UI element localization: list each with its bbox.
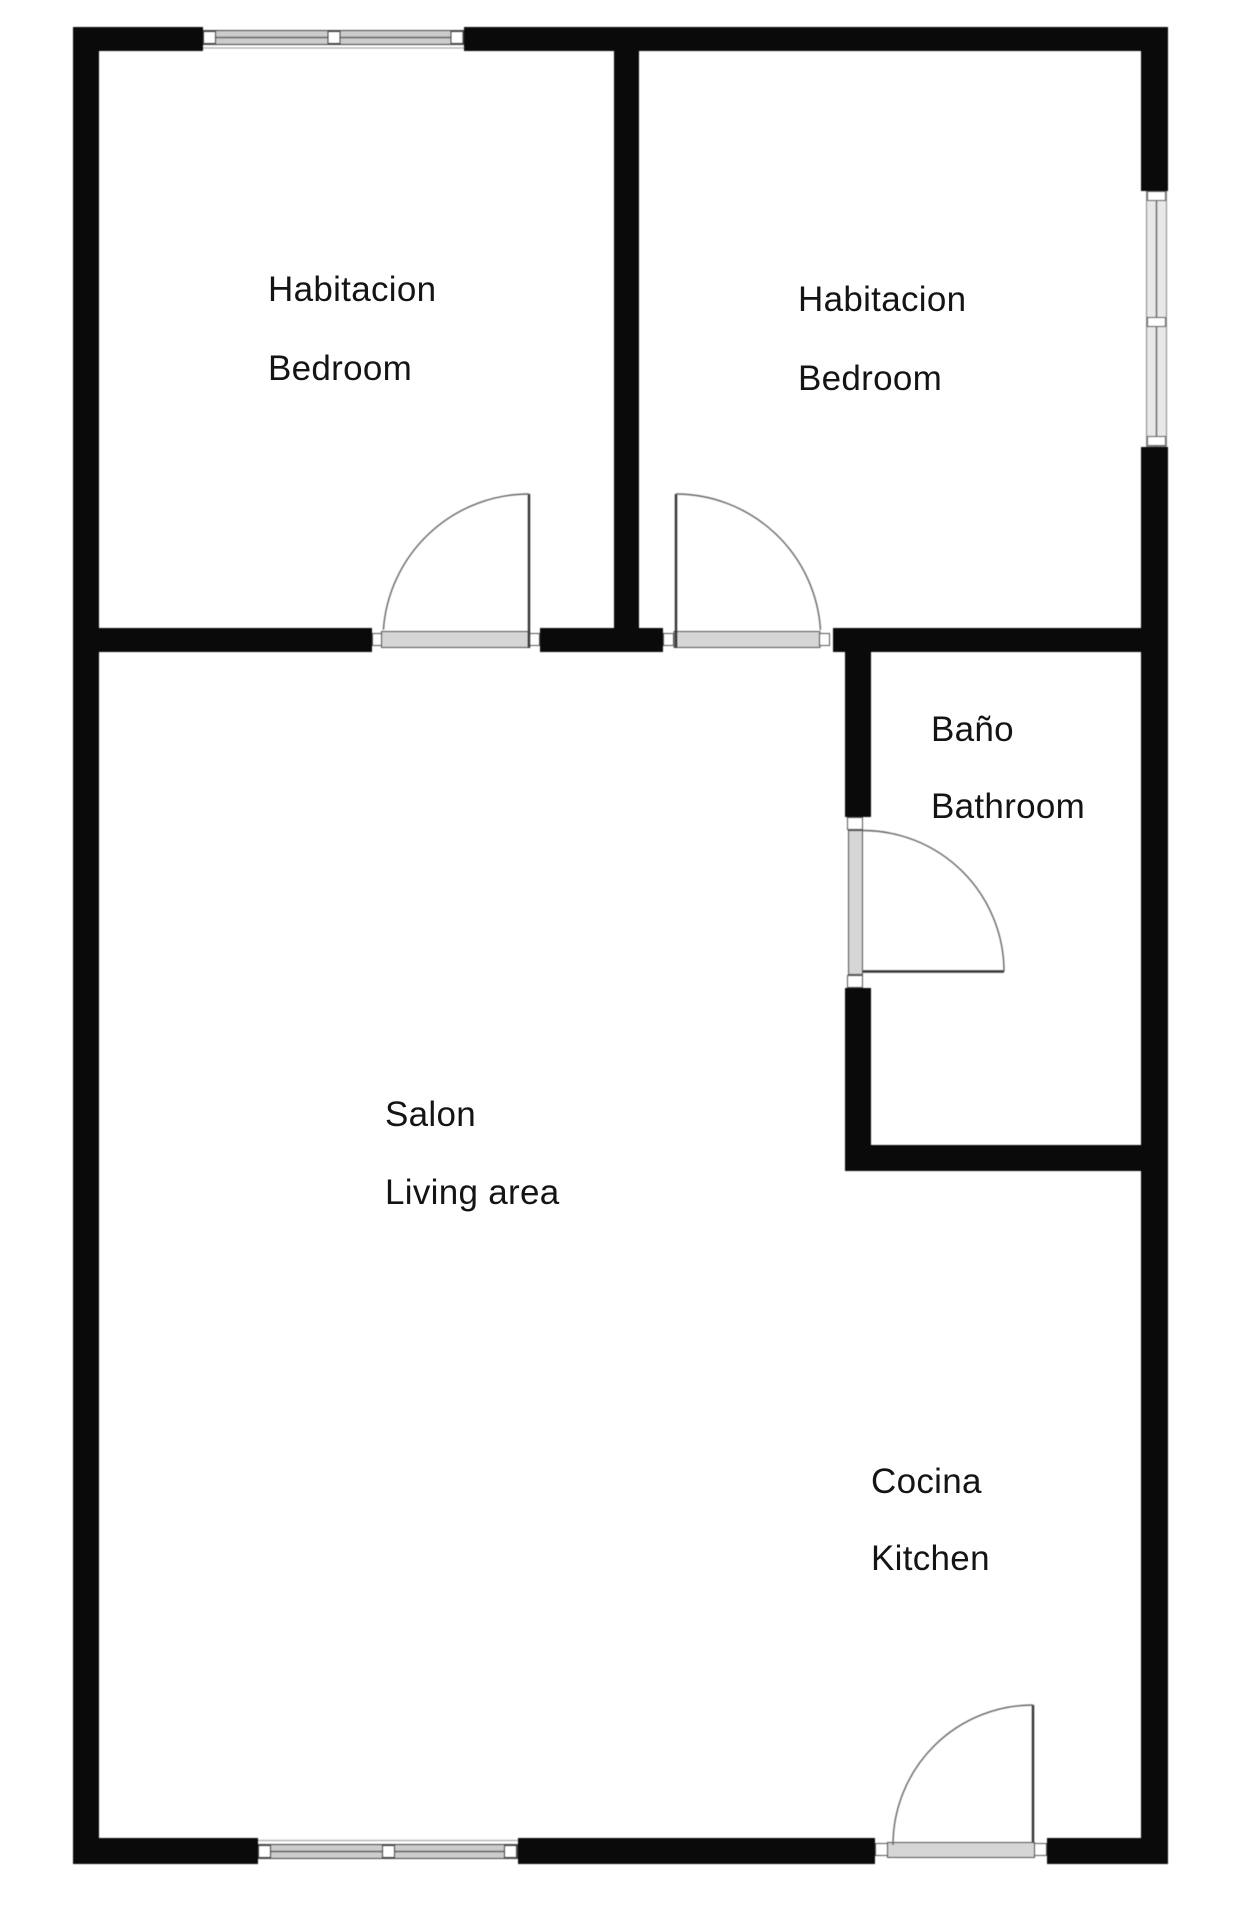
svg-text:Living area: Living area bbox=[385, 1173, 560, 1212]
svg-text:Cocina: Cocina bbox=[871, 1462, 982, 1501]
svg-text:Habitacion: Habitacion bbox=[798, 280, 966, 319]
svg-text:Bedroom: Bedroom bbox=[798, 359, 942, 398]
svg-text:Habitacion: Habitacion bbox=[268, 270, 436, 309]
svg-text:Salon: Salon bbox=[385, 1095, 476, 1134]
svg-text:Kitchen: Kitchen bbox=[871, 1539, 990, 1578]
svg-text:Baño: Baño bbox=[931, 710, 1014, 749]
svg-text:Bedroom: Bedroom bbox=[268, 349, 412, 388]
svg-text:Bathroom: Bathroom bbox=[931, 787, 1085, 826]
